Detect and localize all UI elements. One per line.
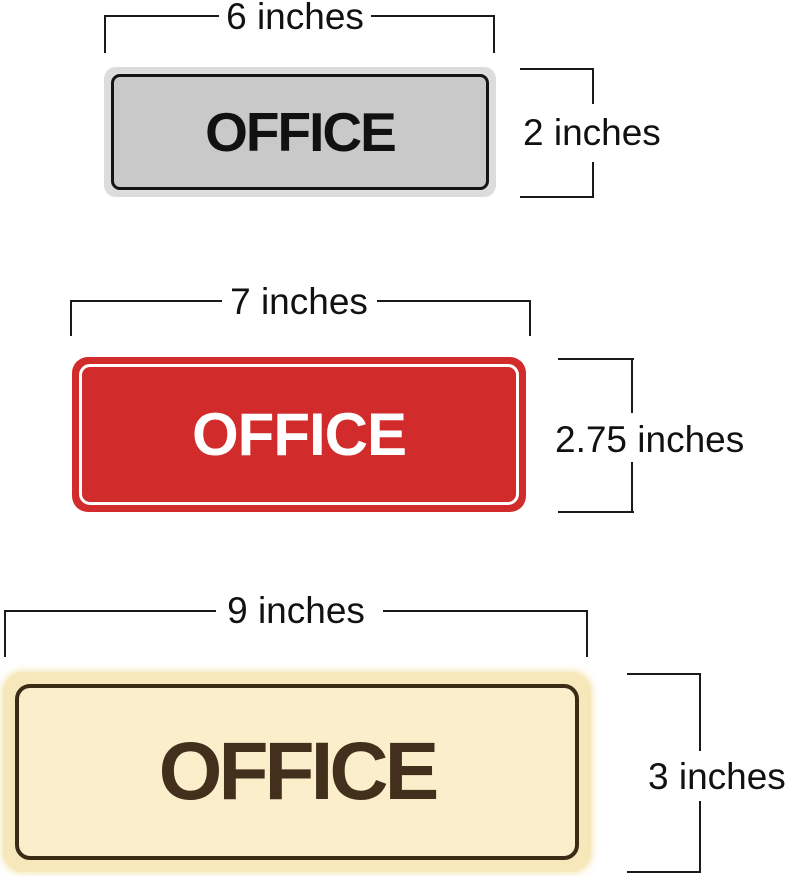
width-dim-tick-right-sign3 xyxy=(586,610,588,657)
height-dim-tick-bottom-sign2 xyxy=(558,511,634,513)
width-dim-tick-left-sign2 xyxy=(70,300,72,336)
height-dim-label-sign3: 3 inches xyxy=(648,757,786,797)
width-dim-tick-right-sign1 xyxy=(493,15,495,53)
height-dim-tick-bottom-sign3 xyxy=(627,871,701,873)
height-dim-label-sign1: 2 inches xyxy=(523,113,661,153)
width-dim-tick-right-sign2 xyxy=(529,300,531,336)
width-dim-tick-left-sign1 xyxy=(104,15,106,53)
office-sign-gray-face: OFFICE xyxy=(111,74,489,190)
office-sign-red-face: OFFICE xyxy=(79,364,519,505)
width-dim-label-sign2: 7 inches xyxy=(184,282,414,322)
height-dim-tick-top-sign1 xyxy=(520,68,594,70)
width-dim-label-sign1: 6 inches xyxy=(180,0,410,37)
office-sign-cream-label: OFFICE xyxy=(159,725,436,819)
height-dim-tick-top-sign2 xyxy=(558,358,634,360)
height-dim-line-upper-sign3 xyxy=(699,673,701,751)
height-dim-tick-top-sign3 xyxy=(627,673,701,675)
width-dim-tick-left-sign3 xyxy=(4,610,6,657)
office-sign-gray: OFFICE xyxy=(104,67,496,197)
width-dim-line-right-sign3 xyxy=(383,610,588,612)
office-sign-size-diagram: 6 inches OFFICE 2 inches 7 inches OFFICE… xyxy=(0,0,795,876)
office-sign-red-label: OFFICE xyxy=(192,400,406,469)
width-dim-label-sign3: 9 inches xyxy=(181,591,411,631)
height-dim-label-sign2: 2.75 inches xyxy=(555,420,744,460)
office-sign-cream-face: OFFICE xyxy=(15,684,579,860)
office-sign-gray-label: OFFICE xyxy=(205,100,395,164)
height-dim-line-lower-sign3 xyxy=(699,801,701,873)
height-dim-line-lower-sign2 xyxy=(631,462,633,513)
height-dim-line-lower-sign1 xyxy=(592,162,594,198)
height-dim-tick-bottom-sign1 xyxy=(520,196,594,198)
height-dim-line-upper-sign1 xyxy=(592,68,594,104)
office-sign-cream: OFFICE xyxy=(3,672,591,872)
height-dim-line-upper-sign2 xyxy=(631,358,633,413)
office-sign-red: OFFICE xyxy=(72,357,526,512)
